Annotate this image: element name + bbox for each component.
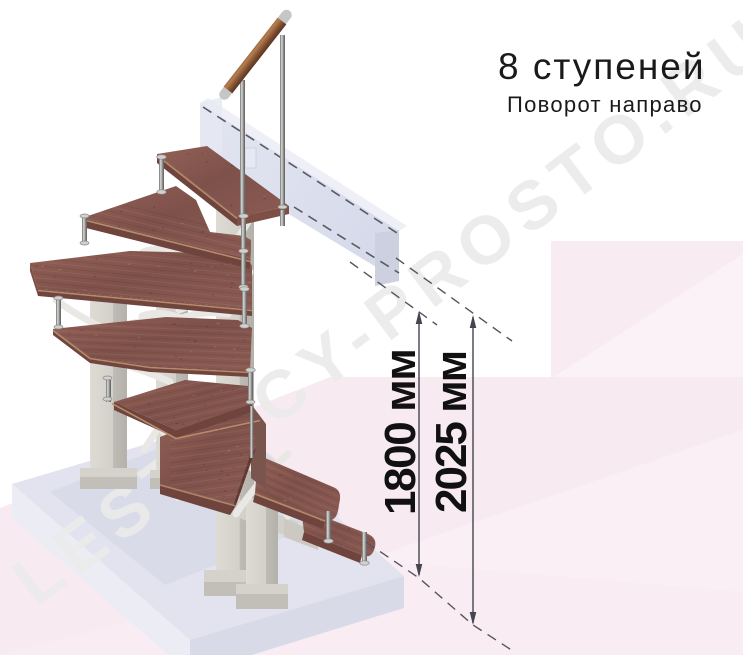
svg-text:8 ступеней: 8 ступеней bbox=[498, 46, 706, 87]
svg-text:2025 мм: 2025 мм bbox=[427, 352, 476, 513]
svg-text:Поворот направо: Поворот направо bbox=[507, 92, 703, 117]
svg-text:1800 мм: 1800 мм bbox=[376, 350, 425, 515]
